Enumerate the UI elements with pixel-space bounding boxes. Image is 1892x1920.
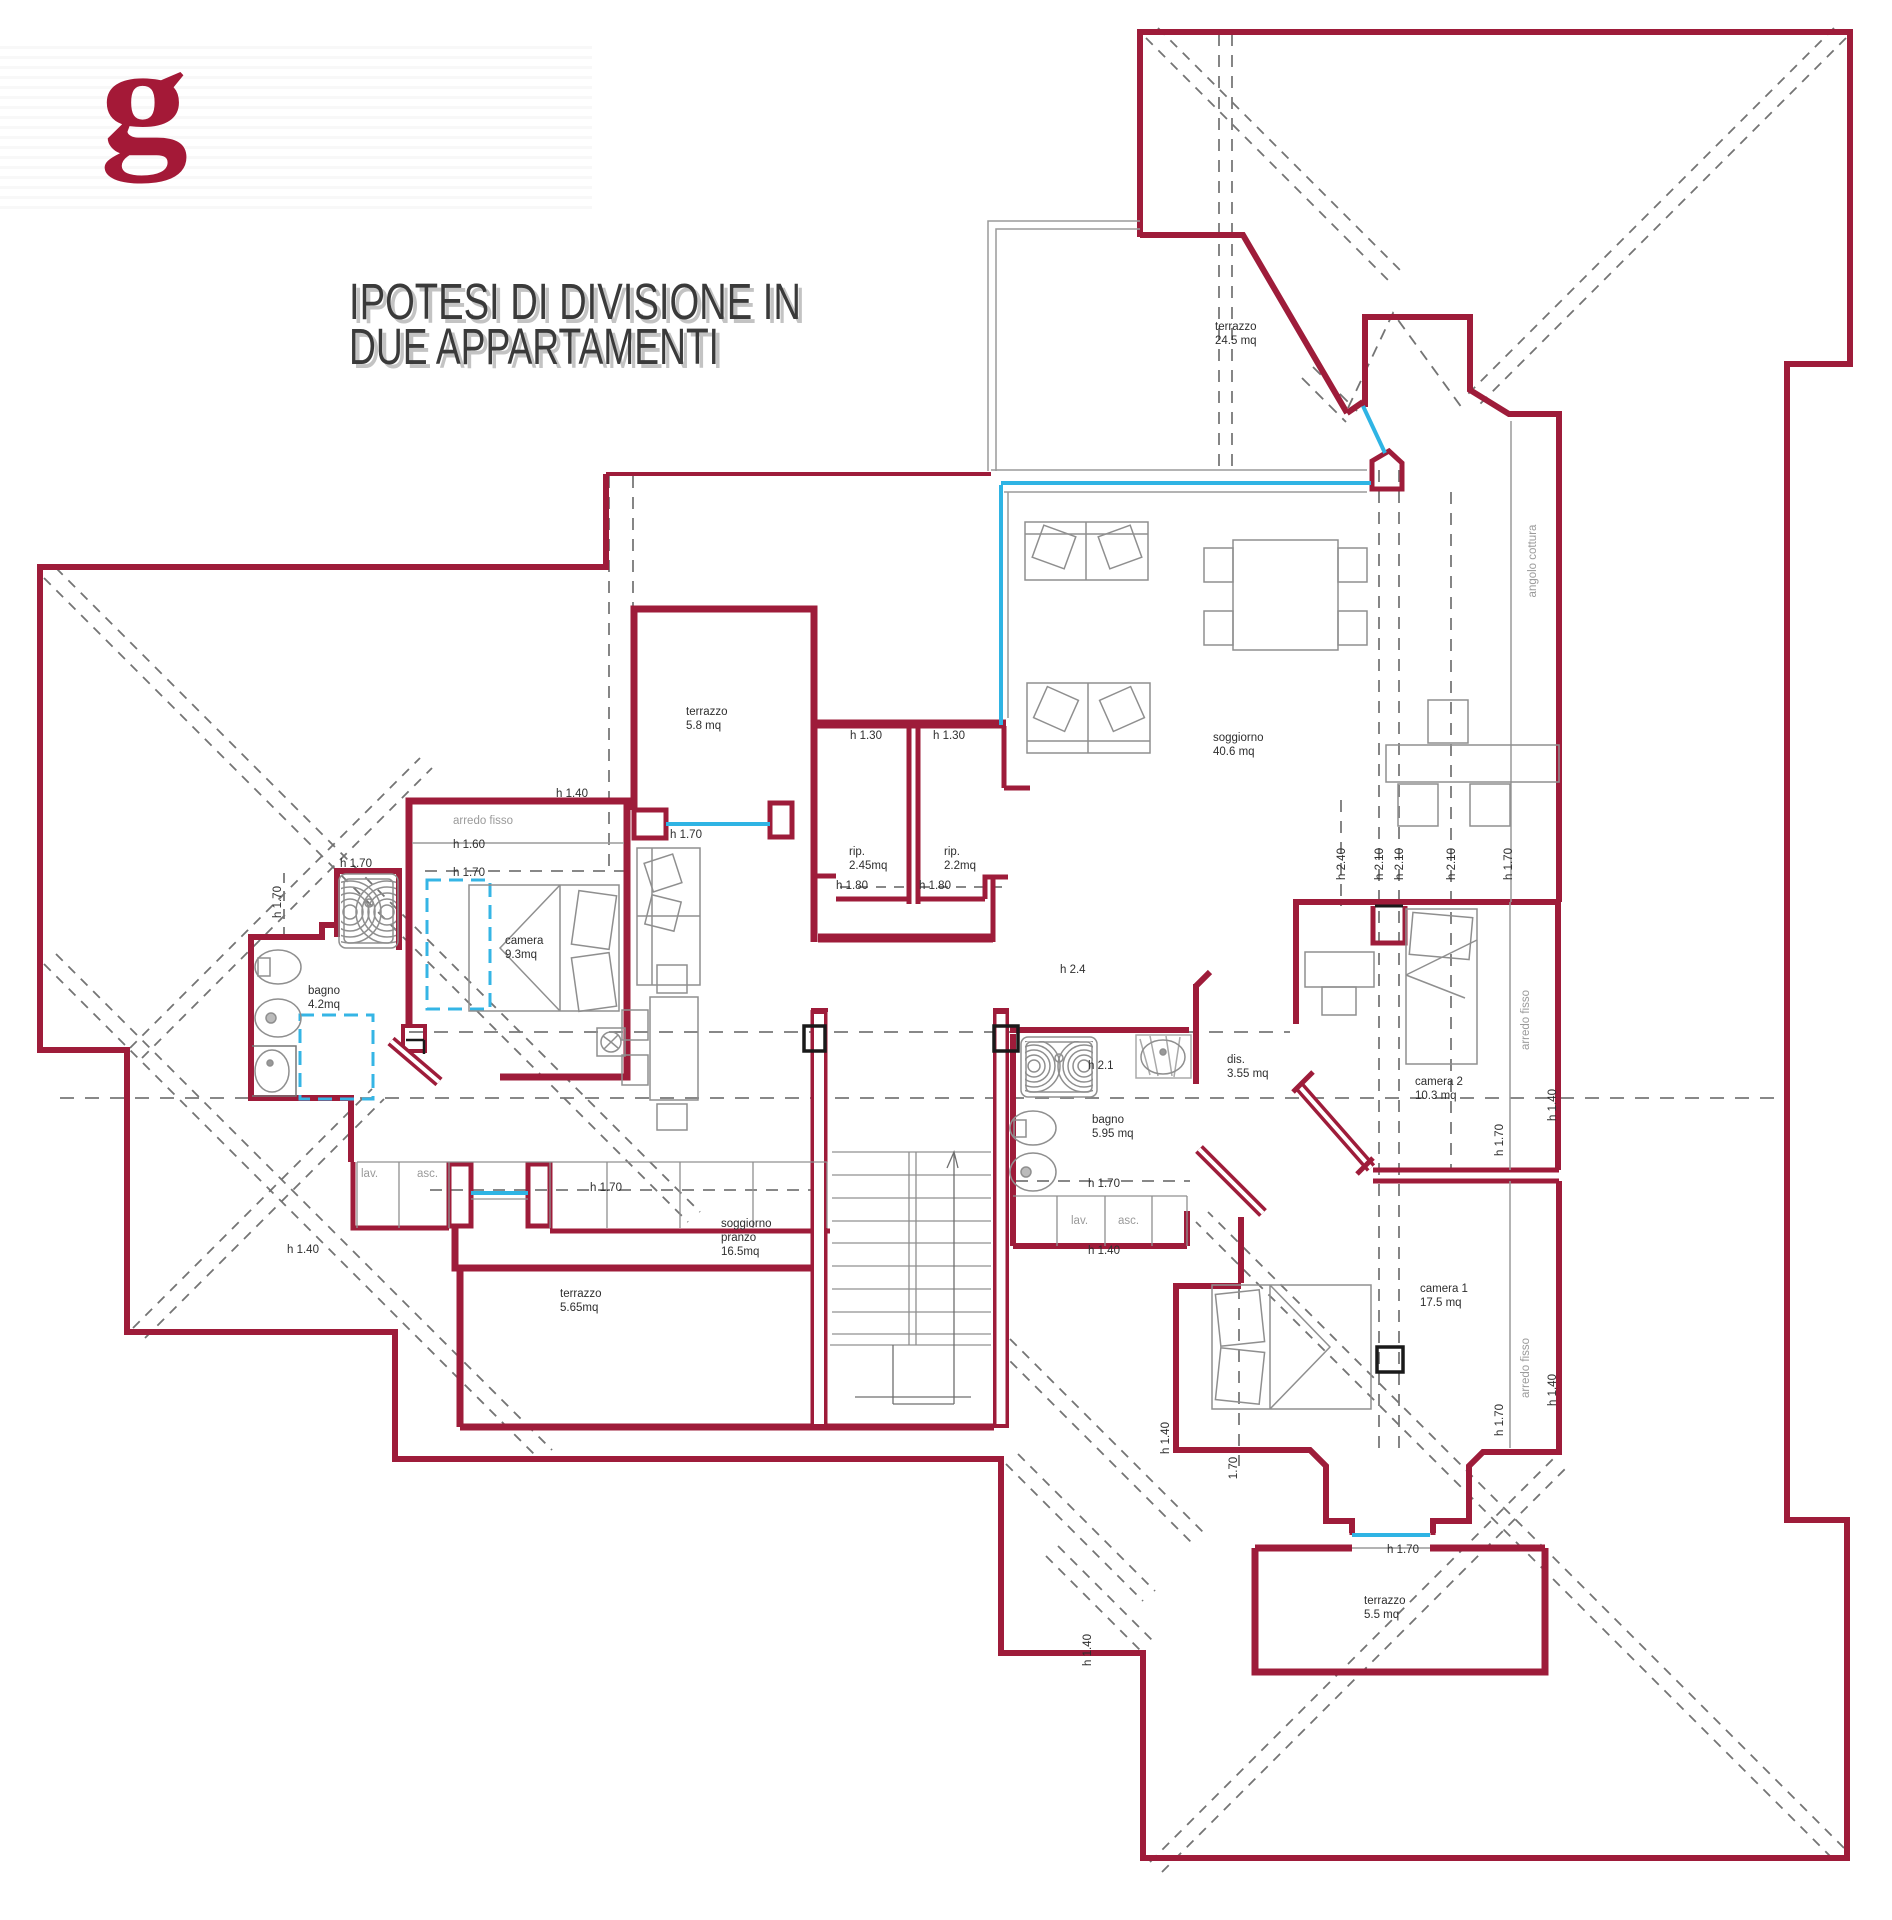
svg-text:h 1.70: h 1.70: [453, 867, 485, 879]
svg-text:5.95 mq: 5.95 mq: [1092, 1128, 1134, 1140]
svg-text:h 1.40: h 1.40: [1082, 1634, 1094, 1666]
svg-text:h 1.80: h 1.80: [919, 880, 951, 892]
svg-text:h 1.60: h 1.60: [453, 839, 485, 851]
svg-text:terrazzo: terrazzo: [686, 706, 728, 718]
svg-text:h 1.30: h 1.30: [850, 730, 882, 742]
svg-text:h 1.70: h 1.70: [1503, 848, 1515, 880]
svg-text:h 2.4: h 2.4: [1060, 964, 1086, 976]
svg-text:g: g: [100, 14, 188, 184]
svg-text:h 2.1: h 2.1: [1088, 1060, 1114, 1072]
svg-text:camera 2: camera 2: [1415, 1076, 1463, 1088]
svg-text:terrazzo: terrazzo: [1364, 1595, 1406, 1607]
svg-text:camera 1: camera 1: [1420, 1283, 1468, 1295]
svg-text:40.6 mq: 40.6 mq: [1213, 746, 1255, 758]
svg-text:camera: camera: [505, 935, 544, 947]
svg-text:h 2.40: h 2.40: [1336, 848, 1348, 880]
svg-text:asc.: asc.: [1118, 1215, 1139, 1227]
svg-text:bagno: bagno: [308, 985, 340, 997]
svg-text:rip.: rip.: [849, 846, 865, 858]
svg-text:h 2.10: h 2.10: [1446, 848, 1458, 880]
svg-text:h 1.70: h 1.70: [590, 1182, 622, 1194]
svg-text:arredo fisso: arredo fisso: [1520, 990, 1532, 1050]
svg-text:17.5 mq: 17.5 mq: [1420, 1297, 1462, 1309]
svg-text:9.3mq: 9.3mq: [505, 949, 537, 961]
svg-text:16.5mq: 16.5mq: [721, 1246, 759, 1258]
svg-text:h 1.30: h 1.30: [933, 730, 965, 742]
svg-text:5.65mq: 5.65mq: [560, 1302, 598, 1314]
svg-text:h 1.70: h 1.70: [1387, 1544, 1419, 1556]
svg-text:2.2mq: 2.2mq: [944, 860, 976, 872]
svg-text:h 2.10: h 2.10: [1374, 848, 1386, 880]
svg-text:pranzo: pranzo: [721, 1232, 756, 1244]
svg-text:rip.: rip.: [944, 846, 960, 858]
svg-text:2.45mq: 2.45mq: [849, 860, 887, 872]
svg-text:1.70: 1.70: [1228, 1457, 1240, 1479]
svg-text:h 1.70: h 1.70: [1494, 1404, 1506, 1436]
svg-text:soggiorno: soggiorno: [1213, 732, 1264, 744]
svg-text:lav.: lav.: [361, 1168, 378, 1180]
svg-text:h 1.40: h 1.40: [287, 1244, 319, 1256]
svg-text:h 1.70: h 1.70: [272, 886, 284, 918]
svg-text:10.3 mq: 10.3 mq: [1415, 1090, 1457, 1102]
svg-text:lav.: lav.: [1071, 1215, 1088, 1227]
svg-text:3.55 mq: 3.55 mq: [1227, 1068, 1269, 1080]
svg-text:terrazzo: terrazzo: [1215, 321, 1257, 333]
svg-text:arredo fisso: arredo fisso: [1520, 1338, 1532, 1398]
svg-text:DUE APPARTAMENTI: DUE APPARTAMENTI: [349, 318, 719, 375]
svg-text:h 1.40: h 1.40: [1547, 1089, 1559, 1121]
svg-text:h 1.40: h 1.40: [1547, 1374, 1559, 1406]
svg-text:5.5 mq: 5.5 mq: [1364, 1609, 1399, 1621]
svg-text:h 1.70: h 1.70: [340, 858, 372, 870]
svg-text:h 1.80: h 1.80: [836, 880, 868, 892]
svg-text:5.8 mq: 5.8 mq: [686, 720, 721, 732]
svg-text:h 1.40: h 1.40: [1160, 1422, 1172, 1454]
svg-text:soggiorno: soggiorno: [721, 1218, 772, 1230]
svg-text:angolo cottura: angolo cottura: [1527, 524, 1539, 597]
svg-text:bagno: bagno: [1092, 1114, 1124, 1126]
svg-text:h 1.70: h 1.70: [1494, 1124, 1506, 1156]
svg-text:h 1.70: h 1.70: [670, 829, 702, 841]
svg-text:dis.: dis.: [1227, 1054, 1245, 1066]
svg-text:terrazzo: terrazzo: [560, 1288, 602, 1300]
svg-text:h 2.10: h 2.10: [1394, 848, 1406, 880]
svg-text:4.2mq: 4.2mq: [308, 999, 340, 1011]
svg-text:asc.: asc.: [417, 1168, 438, 1180]
svg-text:h 1.70: h 1.70: [1088, 1178, 1120, 1190]
svg-text:arredo fisso: arredo fisso: [453, 815, 513, 827]
svg-text:h 1.40: h 1.40: [556, 788, 588, 800]
svg-text:24.5 mq: 24.5 mq: [1215, 335, 1257, 347]
svg-text:h 1.40: h 1.40: [1088, 1245, 1120, 1257]
